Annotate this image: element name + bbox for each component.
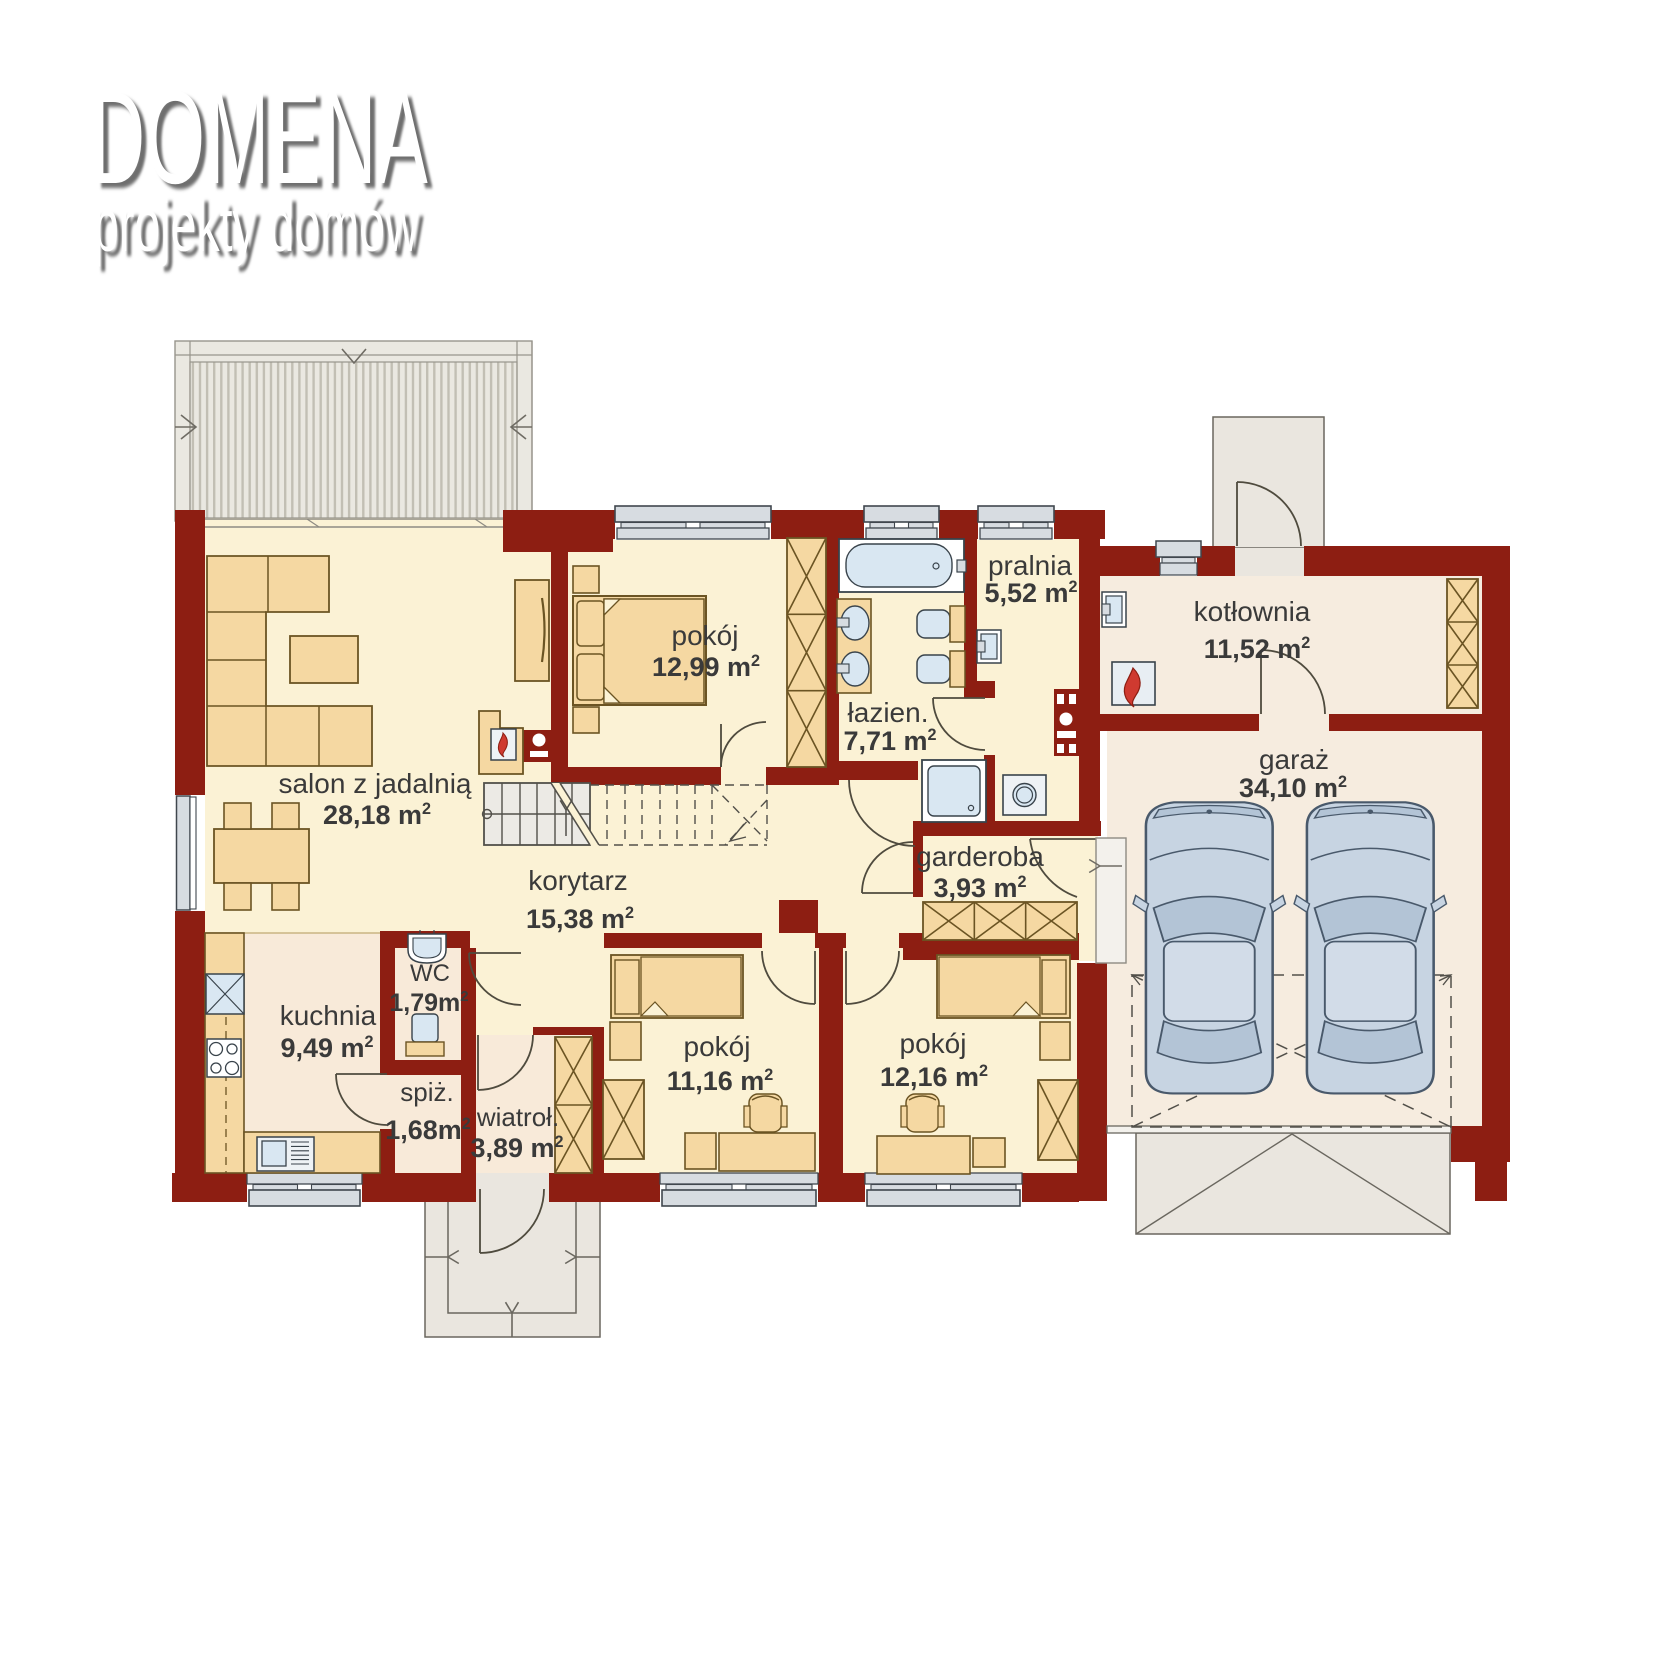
svg-text:spiż.: spiż. <box>400 1077 453 1107</box>
svg-text:pokój: pokój <box>900 1028 967 1059</box>
svg-text:7,71 m2: 7,71 m2 <box>843 726 936 756</box>
svg-text:WC: WC <box>410 960 450 987</box>
svg-text:kuchnia: kuchnia <box>280 1000 377 1031</box>
svg-text:garderoba: garderoba <box>916 841 1044 872</box>
svg-text:34,10 m2: 34,10 m2 <box>1239 773 1347 803</box>
svg-text:kotłownia: kotłownia <box>1194 596 1311 627</box>
svg-text:salon z jadalnią: salon z jadalnią <box>278 768 471 799</box>
svg-text:11,16 m2: 11,16 m2 <box>667 1066 774 1096</box>
svg-text:projekty domów: projekty domów <box>93 185 419 268</box>
svg-text:3,89 m2: 3,89 m2 <box>470 1133 563 1163</box>
svg-text:12,99 m2: 12,99 m2 <box>652 652 760 682</box>
svg-text:korytarz: korytarz <box>528 865 628 896</box>
svg-text:15,38 m2: 15,38 m2 <box>526 904 634 934</box>
svg-text:1,79m2: 1,79m2 <box>389 988 468 1017</box>
svg-text:pralnia: pralnia <box>988 550 1072 581</box>
svg-text:28,18 m2: 28,18 m2 <box>323 800 431 830</box>
svg-text:łazien.: łazien. <box>848 697 929 728</box>
svg-text:wiatroł.: wiatroł. <box>476 1102 559 1132</box>
svg-text:1,68m2: 1,68m2 <box>385 1115 471 1145</box>
svg-text:12,16 m2: 12,16 m2 <box>880 1062 988 1092</box>
svg-text:9,49 m2: 9,49 m2 <box>280 1033 373 1063</box>
svg-text:garaż: garaż <box>1259 744 1329 775</box>
svg-text:pokój: pokój <box>684 1031 751 1062</box>
svg-text:5,52 m2: 5,52 m2 <box>984 578 1077 608</box>
svg-text:pokój: pokój <box>672 620 739 651</box>
svg-text:3,93 m2: 3,93 m2 <box>933 873 1026 903</box>
svg-text:11,52 m2: 11,52 m2 <box>1204 634 1311 664</box>
